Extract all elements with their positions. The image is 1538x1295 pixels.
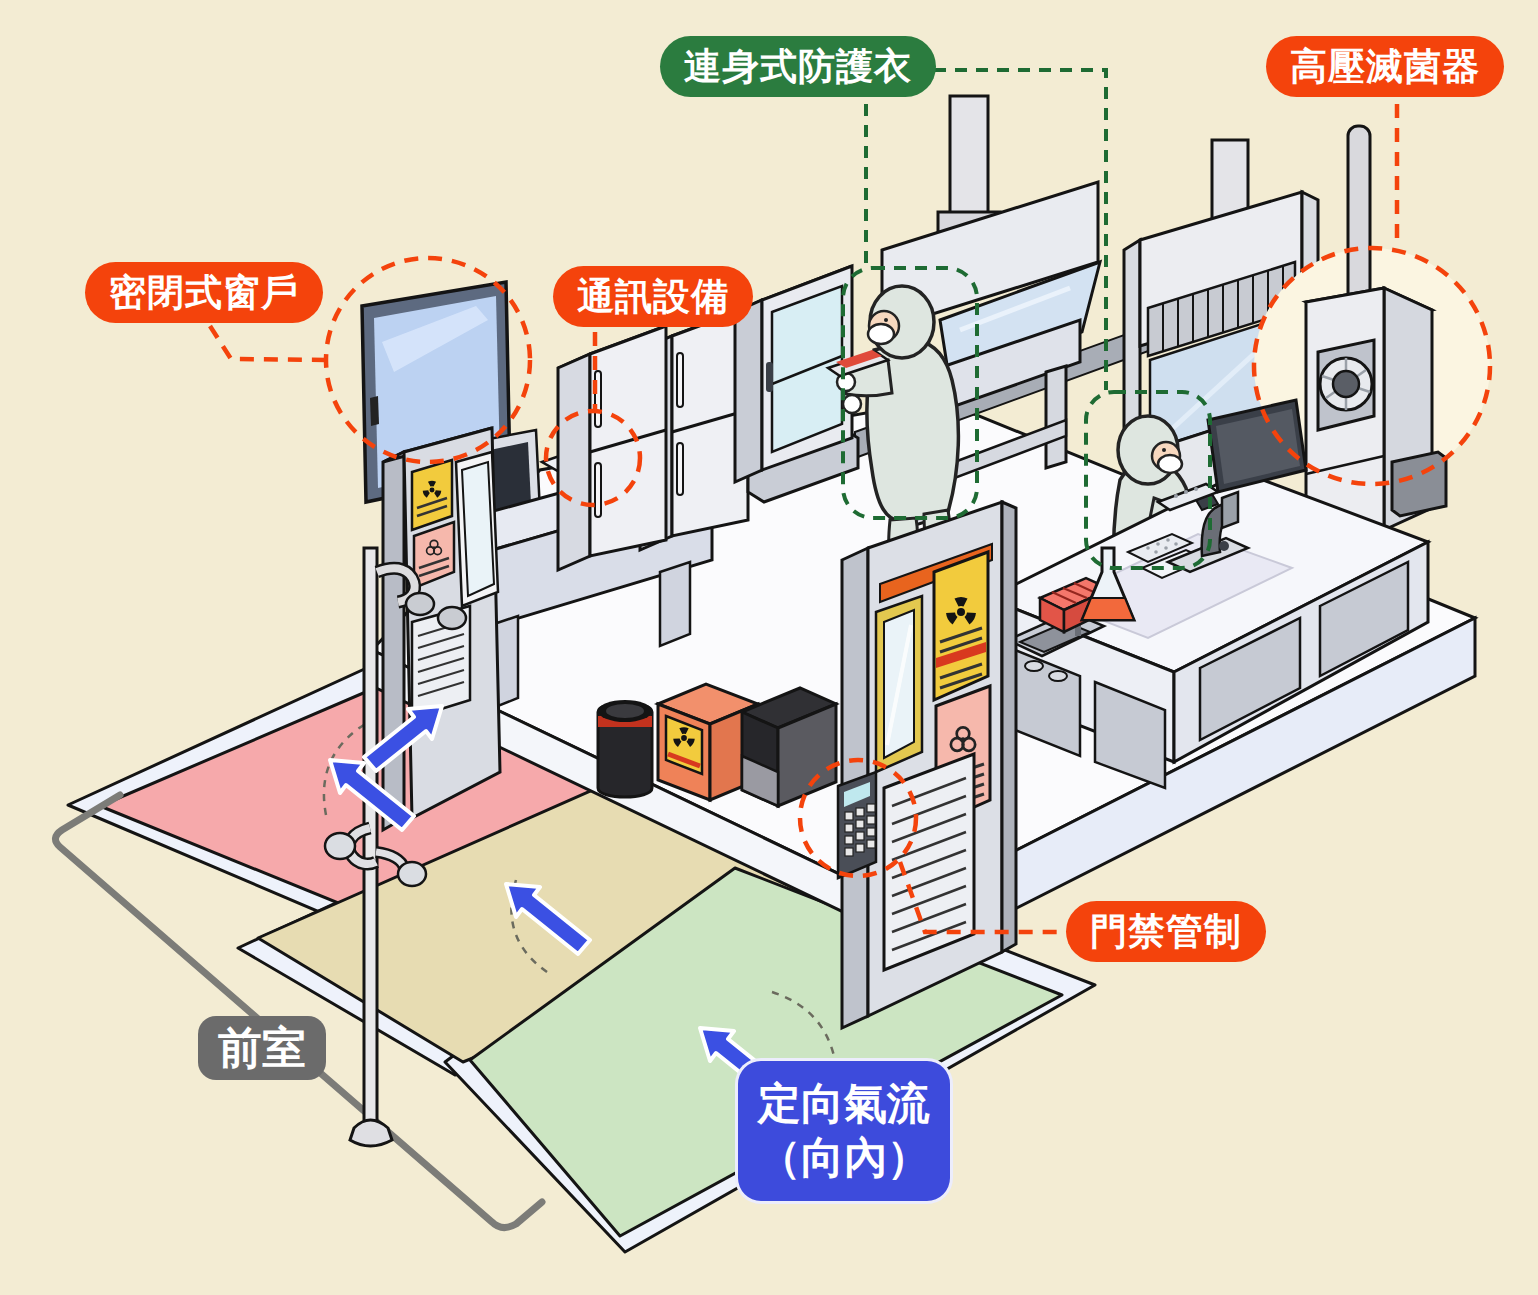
callout-directional-airflow: 定向氣流 （向內） bbox=[735, 1058, 953, 1204]
window-handle bbox=[370, 396, 379, 426]
autoclave-pedestal bbox=[1392, 452, 1446, 516]
waste-containers bbox=[598, 684, 836, 806]
airflow-label-line2: （向內） bbox=[758, 1133, 930, 1181]
door-window bbox=[462, 462, 494, 596]
incubator-handle bbox=[766, 362, 773, 392]
refrigerator-1 bbox=[558, 326, 666, 570]
callout-protective-suit: 連身式防護衣 bbox=[660, 36, 936, 97]
airflow-label-line1: 定向氣流 bbox=[758, 1079, 930, 1127]
callout-access-control: 門禁管制 bbox=[1066, 901, 1266, 962]
exhaust-duct bbox=[950, 96, 988, 222]
lab-entry-door bbox=[838, 502, 1016, 1028]
radiation-warning-sign bbox=[934, 552, 988, 700]
waste-drum bbox=[598, 700, 652, 797]
shower-head bbox=[438, 607, 466, 629]
autoclave-chimney bbox=[1348, 126, 1370, 312]
biosafety-lab-diagram: 密閉式窗戶 通訊設備 連身式防護衣 高壓滅菌器 門禁管制 前室 定向氣流 （向內… bbox=[0, 0, 1538, 1295]
shower-head bbox=[325, 833, 355, 859]
keypad bbox=[838, 772, 876, 878]
anteroom-door bbox=[383, 428, 500, 830]
callout-communication: 通訊設備 bbox=[553, 266, 753, 327]
waste-bin bbox=[742, 688, 836, 806]
callout-sealed-window: 密閉式窗戶 bbox=[85, 262, 323, 323]
callout-autoclave: 高壓滅菌器 bbox=[1266, 36, 1504, 97]
callout-anteroom: 前室 bbox=[198, 1016, 326, 1080]
fume-hood-duct bbox=[1212, 140, 1248, 220]
shower-head bbox=[398, 862, 426, 886]
face-mask bbox=[1158, 455, 1182, 473]
face-mask bbox=[868, 324, 894, 344]
shower-head bbox=[406, 593, 434, 615]
